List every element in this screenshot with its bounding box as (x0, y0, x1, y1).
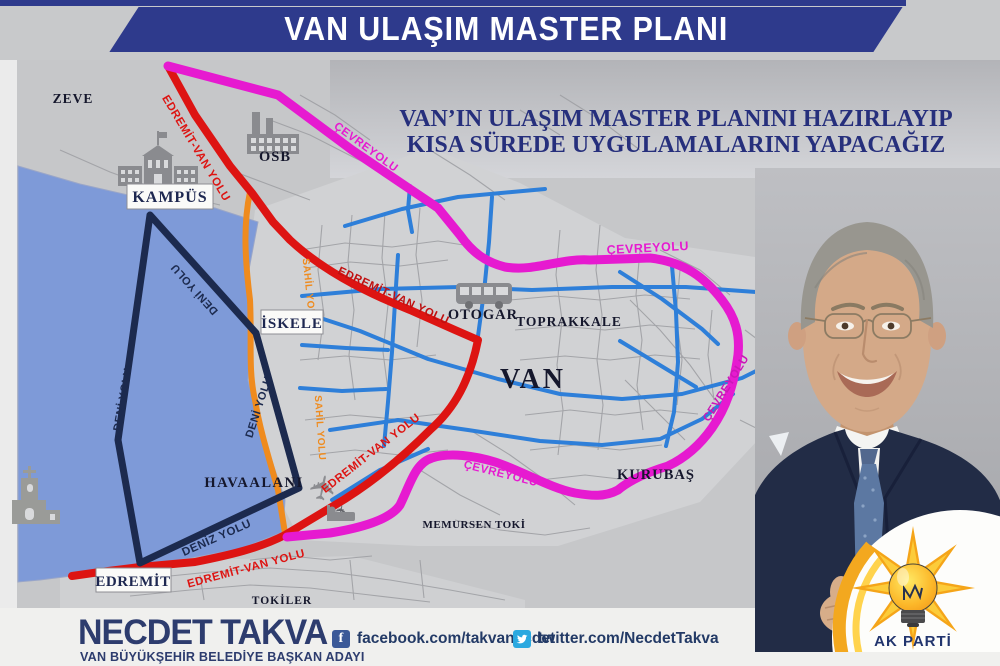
slogan-line-2: KISA SÜREDE UYGULAMALARINI YAPACAĞIZ (389, 132, 963, 158)
twitter-bird-icon (513, 630, 531, 648)
twitter-link[interactable]: twitter.com/NecdetTakva (513, 630, 719, 648)
candidate-portrait: AK PARTİ (755, 168, 1000, 652)
place-label-zeve: ZEVE (53, 91, 94, 106)
place-label-edremit: EDREMİT (95, 573, 170, 590)
poster-title: VAN ULAŞIM MASTER PLANI (106, 10, 906, 48)
slogan: VAN’IN ULAŞIM MASTER PLANINI HAZIRLAYIP … (380, 106, 972, 158)
banner-top-strip (0, 0, 906, 6)
place-label-kampus: KAMPÜS (132, 188, 207, 206)
place-label-tokiler: TOKİLER (252, 593, 312, 607)
left-iris (842, 323, 849, 330)
campaign-poster: ✈ ✈ EDREMİT-VAN YOLU EDREMİT-VAN YOLU ED… (0, 0, 1000, 666)
candidate-photo: AK PARTİ (755, 168, 1000, 652)
place-label-kurubas: KURUBAŞ (617, 467, 695, 483)
place-label-osb: OSB (259, 149, 291, 165)
lightbulb-sunburst-icon (851, 526, 975, 650)
place-label-havaalani: HAVAALANI (204, 475, 303, 491)
twitter-url[interactable]: twitter.com/NecdetTakva (538, 630, 719, 648)
party-name: AK PARTİ (874, 633, 952, 650)
place-label-toprakkale: TOPRAKKALE (516, 314, 622, 329)
right-iris (888, 323, 895, 330)
place-label-van: VAN (500, 364, 566, 395)
twitter-bird-glyph (515, 632, 529, 646)
candidate-title: VAN BÜYÜKŞEHİR BELEDİYE BAŞKAN ADAYI (80, 650, 365, 664)
slogan-line-1: VAN’IN ULAŞIM MASTER PLANINI HAZIRLAYIP (389, 106, 963, 132)
poster-title-text: VAN ULAŞIM MASTER PLANI (284, 10, 728, 48)
pocket-square (769, 432, 789, 456)
place-label-iskele: İSKELE (261, 315, 323, 332)
place-label-otogar: OTOGAR (448, 307, 518, 323)
candidate-name: NECDET TAKVA (78, 613, 327, 653)
left-margin (0, 60, 17, 608)
place-label-memursen-toki: MEMURSEN TOKİ (423, 519, 526, 531)
facebook-f-icon: f (332, 630, 350, 648)
